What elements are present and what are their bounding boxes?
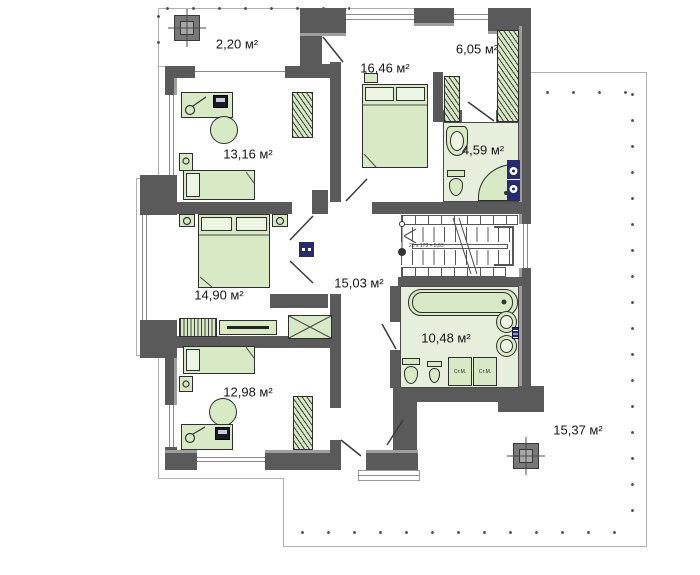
wardrobe — [444, 76, 460, 122]
wall — [366, 450, 418, 470]
toilet-tank — [447, 170, 465, 177]
nightstand — [179, 153, 193, 171]
room-label-bathroom-small: 4,59 м² — [462, 143, 504, 158]
railing-posts — [545, 90, 632, 95]
wall — [390, 350, 400, 388]
bidet-tank — [427, 361, 442, 367]
window — [197, 452, 265, 468]
pillow — [236, 217, 267, 231]
stair-landing-bracket — [494, 226, 514, 266]
window — [165, 405, 177, 447]
window-line — [142, 215, 143, 320]
wall — [393, 402, 417, 450]
door-leaf-bedroom-master — [290, 261, 313, 283]
wall-pilaster — [140, 320, 177, 358]
terrace-outline — [283, 478, 284, 546]
window — [165, 95, 177, 175]
window-line — [173, 405, 174, 447]
pouf-chair — [209, 398, 237, 426]
roof-outline — [136, 178, 137, 355]
window-line — [523, 224, 524, 268]
pillow — [201, 217, 232, 231]
room-label-bathroom-large: 10,48 м² — [421, 331, 470, 346]
wall — [390, 286, 400, 322]
stair-dimension-note: 20 x 173 = 5,63 — [409, 243, 444, 249]
wardrobe — [293, 396, 313, 450]
door-leaf-bedroom-left — [290, 216, 313, 240]
window-line — [195, 71, 285, 72]
window-line — [454, 19, 488, 20]
wall — [165, 358, 177, 405]
wall-stub — [312, 190, 328, 214]
terrace-outline — [283, 546, 646, 547]
wall — [165, 66, 195, 78]
door-leaf-wardrobe-room — [468, 102, 494, 121]
window-line — [197, 461, 265, 462]
wall — [165, 450, 197, 470]
roof-outline — [158, 355, 159, 478]
window-line — [197, 457, 265, 458]
dresser-hatched — [179, 318, 217, 337]
window — [519, 224, 531, 268]
computer-screen — [218, 430, 227, 434]
washing-machine-label: Ст.М. — [454, 369, 466, 375]
railing-posts — [300, 530, 630, 535]
window — [346, 10, 414, 26]
wall — [414, 8, 454, 26]
wall — [519, 268, 531, 390]
roof-outline — [158, 68, 159, 178]
wall-pilaster — [140, 175, 177, 215]
electrical-box-dot — [302, 248, 305, 251]
chimney-core — [180, 21, 194, 35]
wall — [398, 277, 531, 286]
wall — [330, 62, 341, 202]
nightstand — [179, 214, 195, 227]
sink-basin — [500, 339, 513, 353]
wall — [519, 26, 531, 224]
pillow — [365, 87, 394, 101]
wall — [265, 450, 338, 470]
wardrobe — [497, 30, 519, 122]
room-label-hall: 15,03 м² — [334, 276, 383, 291]
wall — [270, 294, 328, 308]
wall — [330, 294, 341, 408]
wall — [177, 202, 292, 214]
stair-number-strip — [401, 215, 518, 225]
bay-window — [138, 215, 152, 320]
door-leaf-balcony — [323, 37, 343, 62]
nightstand — [179, 376, 193, 392]
porch-line — [358, 475, 420, 476]
pillow — [186, 173, 200, 197]
washing-machine-label: Ст.М. — [479, 369, 491, 375]
towel-rail — [512, 327, 519, 339]
washing-machine: Ст.М. — [473, 357, 497, 386]
window-line — [454, 14, 488, 15]
railing-posts — [630, 92, 635, 532]
door-leaf-bedroom-top — [346, 179, 367, 201]
door-leaf-bedroom-bottom — [341, 440, 361, 456]
dresser-crossed — [288, 315, 332, 339]
room-label-terrace: 15,37 м² — [553, 423, 602, 438]
washing-machine: Ст.М. — [448, 357, 472, 386]
roof-outline — [158, 478, 284, 479]
nightstand — [272, 214, 288, 227]
window-line — [169, 95, 170, 175]
wall — [433, 72, 443, 122]
window-line — [527, 224, 528, 268]
window-line — [173, 95, 174, 175]
room-label-balcony: 2,20 м² — [216, 37, 258, 52]
window-line — [346, 19, 414, 20]
wall — [372, 202, 531, 214]
electrical-box-dot — [308, 248, 311, 251]
toilet-tank — [402, 358, 420, 365]
room-label-bedroom-bottom: 12,98 м² — [223, 385, 272, 400]
bathtub-inner — [412, 292, 513, 313]
wardrobe — [292, 92, 313, 138]
window — [454, 10, 488, 26]
tv-icon — [227, 326, 269, 329]
pillow — [186, 349, 200, 371]
computer-screen — [216, 98, 225, 102]
washer-divider — [507, 179, 520, 180]
wall-corner-mass — [498, 386, 544, 412]
stair-number-strip — [401, 267, 506, 277]
terrace-outline — [531, 72, 646, 73]
room-label-bedroom-master: 14,90 м² — [194, 288, 243, 303]
chimney-core — [519, 449, 533, 463]
door-leaf-bathroom-large — [382, 324, 396, 349]
terrace-outline — [646, 72, 647, 547]
room-label-bedroom-top: 16,46 м² — [360, 61, 409, 76]
railing-posts — [156, 14, 161, 64]
pouf-chair — [210, 116, 238, 144]
washer-dryer-stack — [507, 160, 520, 201]
pillow — [396, 87, 425, 101]
window-line — [169, 405, 170, 447]
wall — [300, 8, 346, 36]
room-label-bedroom-left: 13,16 м² — [223, 147, 272, 162]
window-line — [346, 14, 414, 15]
window-line — [146, 215, 147, 320]
room-label-wardrobe-room: 6,05 м² — [456, 42, 498, 57]
floor-plan: Ст.М. Ст.М. 20 x 173 = 5,63 2,20 м² 16,4… — [0, 0, 700, 575]
wall — [330, 440, 341, 470]
window — [195, 66, 285, 78]
